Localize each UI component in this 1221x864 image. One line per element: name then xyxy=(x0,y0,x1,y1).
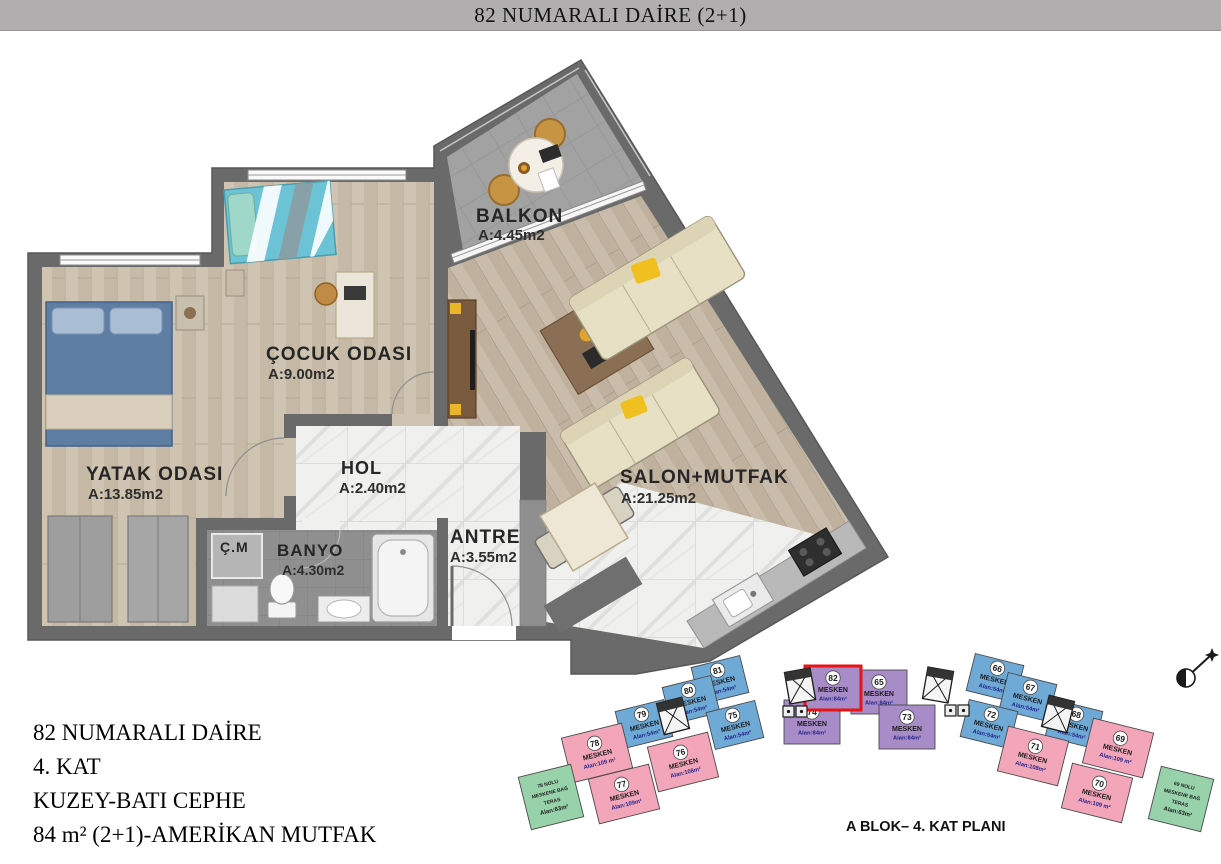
svg-text:82: 82 xyxy=(828,673,838,683)
key-plan-caption-group: A BLOK– 4. KAT PLANI xyxy=(846,819,1006,835)
svg-text:MESKEN: MESKEN xyxy=(864,691,894,698)
info-line-3: KUZEY-BATI CEPHE xyxy=(33,784,376,818)
childroom-window xyxy=(248,170,406,180)
svg-text:73: 73 xyxy=(902,712,912,722)
label-yatak-odasi: YATAK ODASI xyxy=(86,464,223,485)
label-cocuk-odasi: ÇOCUK ODASI xyxy=(266,344,412,365)
svg-text:A:2.40m2: A:2.40m2 xyxy=(339,480,406,497)
keyplan-stair-core-icon xyxy=(784,668,815,704)
key-plan: 81MESKENAlan:54m²80MESKENAlan:54m²79MESK… xyxy=(518,654,1213,832)
info-line-1: 82 NUMARALI DAİRE xyxy=(33,716,376,750)
keyplan-stair-core-icon xyxy=(922,667,953,703)
key-plan-caption: A BLOK– 4. KAT PLANI xyxy=(846,819,1006,835)
keyplan-elevator-icon xyxy=(945,705,956,716)
label-antre: ANTRE xyxy=(450,527,520,548)
keyplan-elevator-icon xyxy=(783,706,794,717)
bathtub xyxy=(372,534,434,622)
svg-text:Alan:84m²: Alan:84m² xyxy=(893,735,921,742)
label-balkon: BALKON xyxy=(476,206,563,227)
svg-text:MESKEN: MESKEN xyxy=(818,687,848,694)
svg-text:MESKEN: MESKEN xyxy=(797,721,827,728)
keyplan-elevator-icon xyxy=(796,706,807,717)
keyplan-unit-73: 73MESKENAlan:84m² xyxy=(879,705,935,749)
keyplan-teras-69: 69 NOLUMESKENE BAĞTERASAlan:63m² xyxy=(1148,766,1213,831)
keyplan-elevator-icon xyxy=(958,705,969,716)
svg-text:65: 65 xyxy=(874,677,884,687)
svg-text:A:21.25m2: A:21.25m2 xyxy=(621,490,696,507)
label-banyo: BANYO xyxy=(277,541,343,560)
svg-text:Alan:84m²: Alan:84m² xyxy=(819,696,847,703)
bedroom-window xyxy=(60,255,200,265)
label-cm: Ç.M xyxy=(220,539,249,555)
sink xyxy=(318,596,370,622)
keyplan-unit-76: 76MESKENAlan:108m² xyxy=(647,732,718,792)
svg-text:A:3.55m2: A:3.55m2 xyxy=(450,549,517,566)
svg-text:A:9.00m2: A:9.00m2 xyxy=(268,366,335,383)
compass-icon xyxy=(1177,648,1219,687)
page: 82 NUMARALI DAİRE (2+1) xyxy=(0,0,1221,864)
toilet xyxy=(268,574,296,618)
label-salon-mutfak: SALON+MUTFAK xyxy=(620,467,789,488)
svg-text:A:4.30m2: A:4.30m2 xyxy=(282,562,344,578)
svg-text:Alan:84m²: Alan:84m² xyxy=(798,730,826,737)
info-block: 82 NUMARALI DAİRE 4. KAT KUZEY-BATI CEPH… xyxy=(33,716,376,852)
info-line-2: 4. KAT xyxy=(33,750,376,784)
svg-text:A:4.45m2: A:4.45m2 xyxy=(478,227,545,244)
svg-text:MESKEN: MESKEN xyxy=(892,726,922,733)
info-line-4: 84 m² (2+1)-AMERİKAN MUTFAK xyxy=(33,818,376,852)
svg-text:A:13.85m2: A:13.85m2 xyxy=(88,486,163,503)
label-hol: HOL xyxy=(341,458,382,478)
